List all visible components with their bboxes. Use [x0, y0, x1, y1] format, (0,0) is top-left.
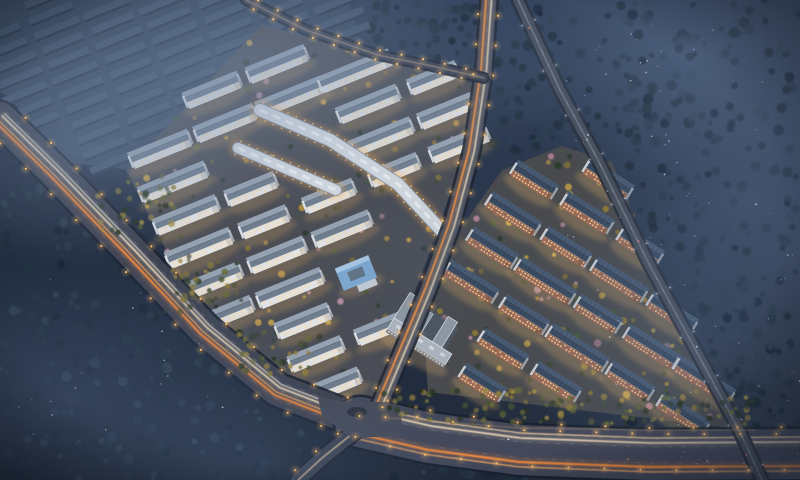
aerial-rendering [0, 0, 800, 480]
vignette-overlay [0, 0, 800, 480]
vignette [0, 0, 800, 480]
masterplan-night-scene [0, 0, 800, 480]
